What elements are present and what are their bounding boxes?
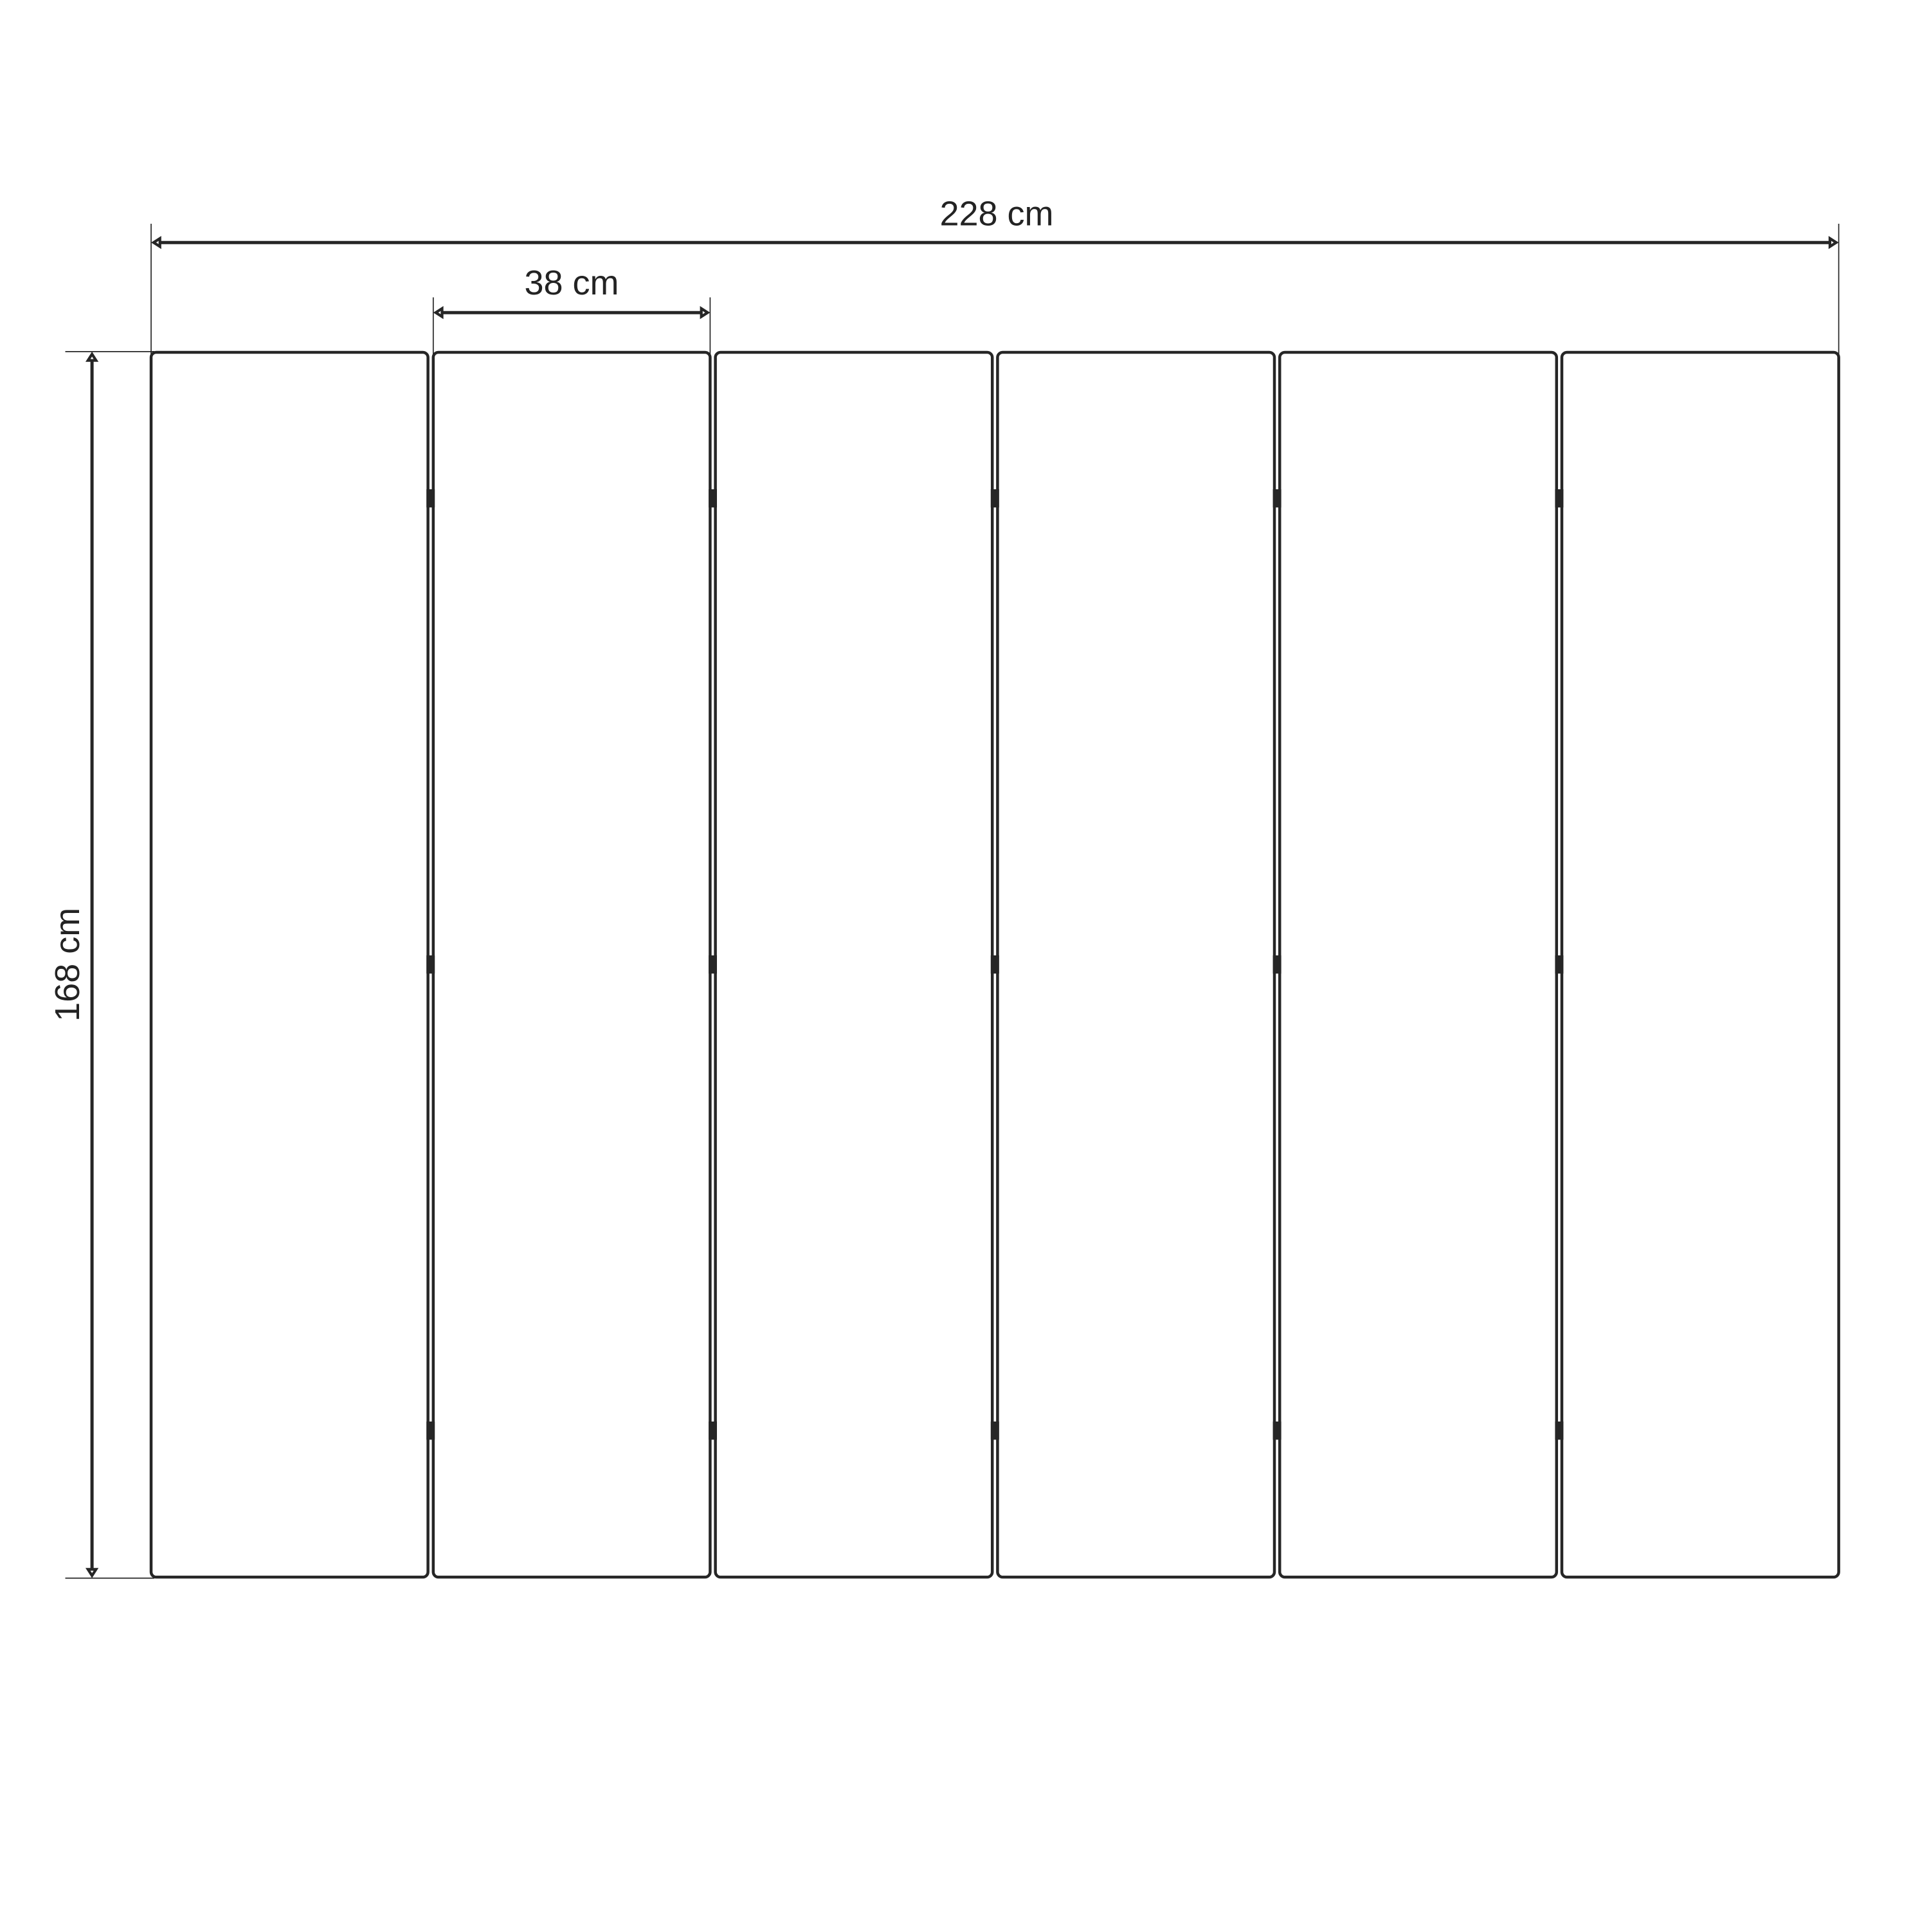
svg-text:38 cm: 38 cm bbox=[524, 264, 619, 302]
svg-text:228 cm: 228 cm bbox=[939, 195, 1053, 233]
svg-text:168 cm: 168 cm bbox=[48, 908, 87, 1022]
